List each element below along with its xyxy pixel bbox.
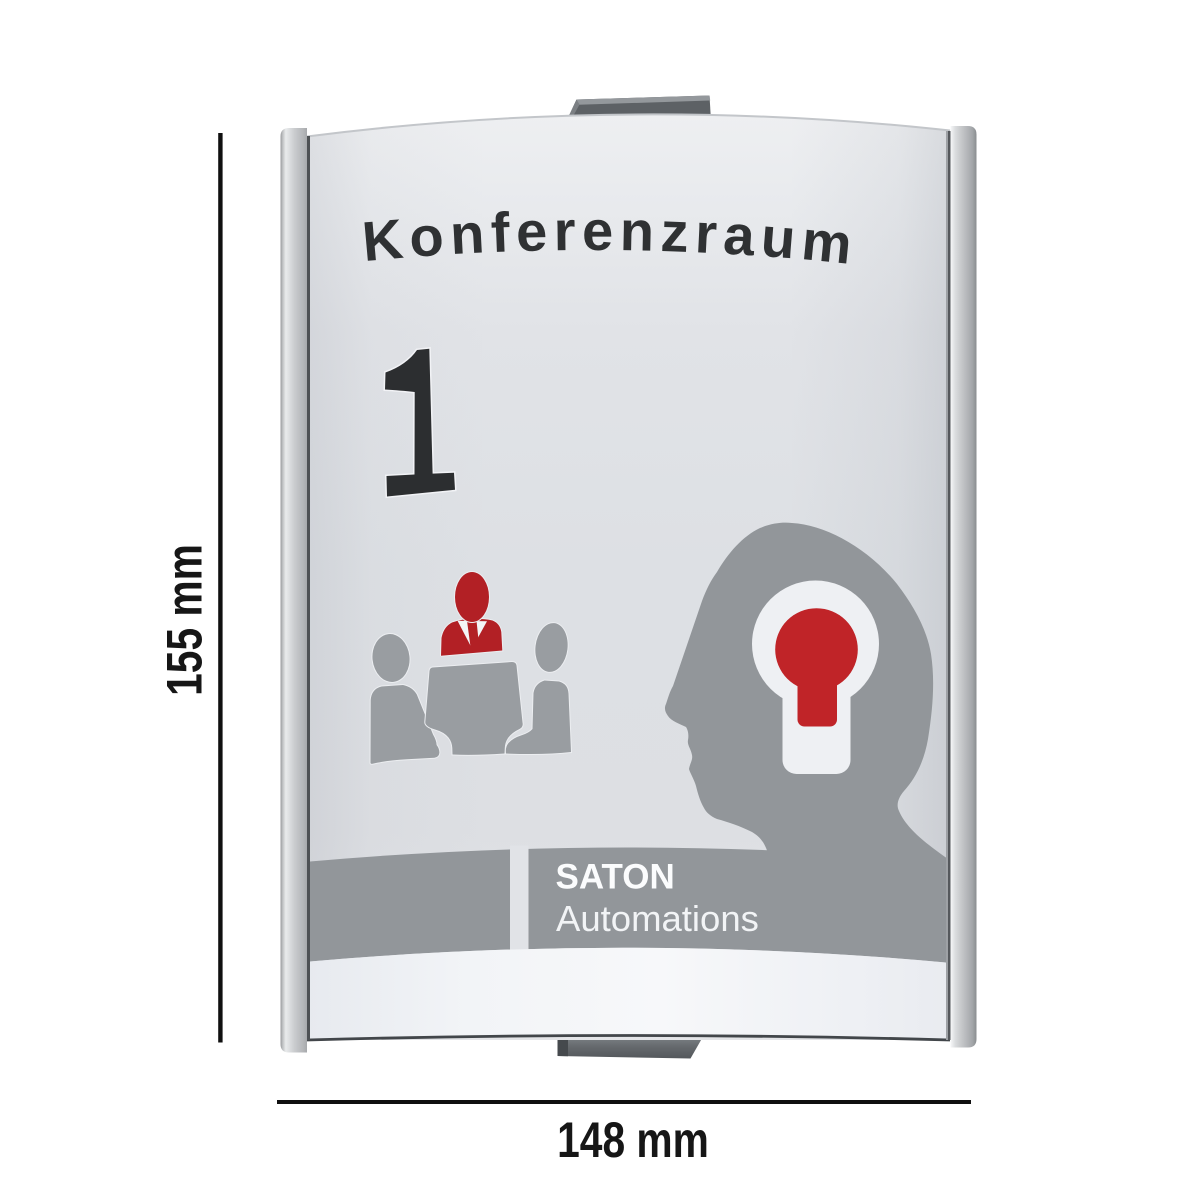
svg-text:Automations: Automations	[556, 898, 759, 939]
svg-text:148 mm: 148 mm	[557, 1112, 709, 1168]
svg-text:155 mm: 155 mm	[157, 544, 213, 696]
svg-text:SATON: SATON	[556, 858, 675, 897]
